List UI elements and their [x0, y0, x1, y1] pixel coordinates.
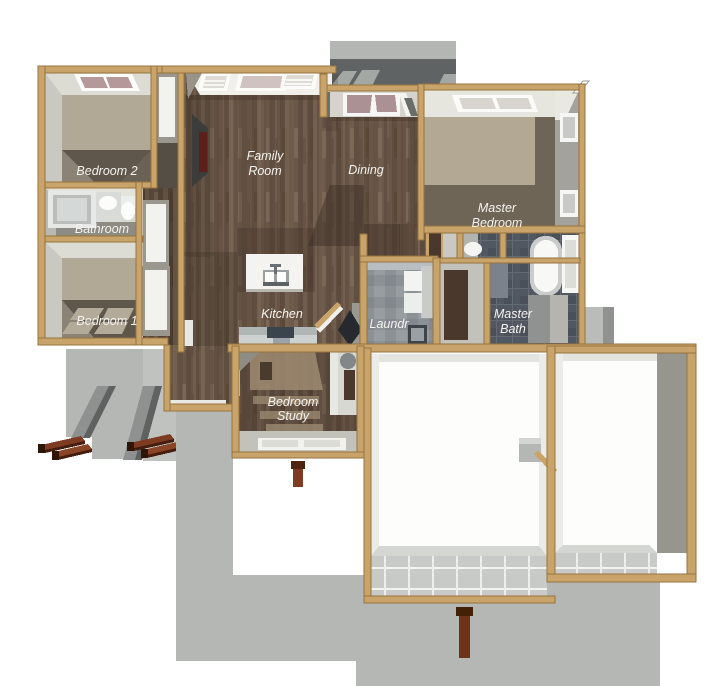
- svg-text:Bedroom: Bedroom: [268, 395, 319, 409]
- svg-text:Kitchen: Kitchen: [261, 307, 303, 321]
- svg-text:Master: Master: [478, 201, 517, 215]
- svg-text:Bedroom: Bedroom: [472, 216, 523, 230]
- svg-text:Bedroom 2: Bedroom 2: [76, 164, 137, 178]
- svg-text:Room: Room: [248, 164, 281, 178]
- svg-text:Bathroom: Bathroom: [75, 222, 129, 236]
- svg-text:Bedroom 1: Bedroom 1: [76, 314, 137, 328]
- svg-text:Family: Family: [247, 149, 285, 163]
- svg-text:Study: Study: [277, 409, 310, 423]
- svg-text:Dining: Dining: [348, 163, 383, 177]
- svg-text:Laundr: Laundr: [370, 317, 410, 331]
- svg-text:Master: Master: [494, 307, 533, 321]
- svg-text:Bath: Bath: [500, 322, 526, 336]
